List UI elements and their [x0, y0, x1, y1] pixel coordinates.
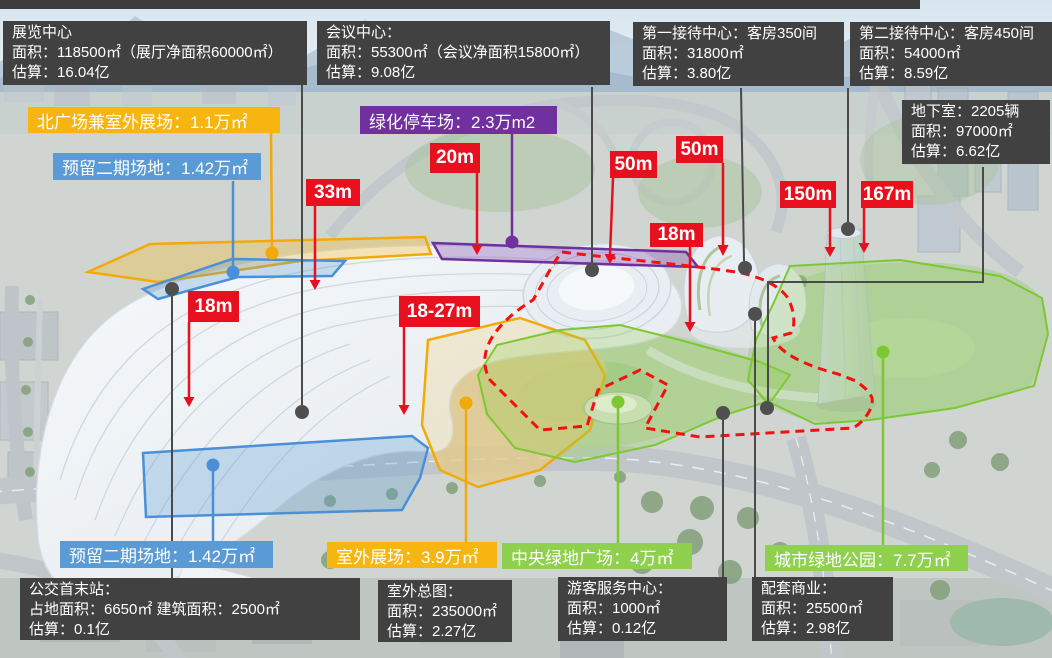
info-line: 展览中心: [12, 23, 298, 43]
leader-dot-reserved-south: [207, 459, 220, 472]
leader-dot-green-parking: [506, 236, 519, 249]
leader-dot-outdoor-exhibition: [460, 397, 473, 410]
dimension-tag-18-27m: 18-27m: [399, 296, 480, 327]
info-line: 估算：2.98亿: [761, 619, 884, 639]
leader-dot-second-reception: [841, 222, 855, 236]
dimension-tag-33m: 33m: [306, 179, 360, 206]
leader-dot-city-park: [877, 346, 890, 359]
info-line: 占地面积：6650㎡ 建筑面积：2500㎡: [29, 600, 351, 620]
info-line: 面积：1000㎡: [567, 599, 718, 619]
area-tag-north-plaza: 北广场兼室外展场：1.1万㎡: [28, 107, 280, 133]
info-line: 面积：54000㎡: [859, 44, 1043, 64]
leader-dot-exhibition: [295, 405, 309, 419]
leader-dot-bus-terminal: [165, 282, 179, 296]
leader-dot-north-plaza: [266, 247, 279, 260]
leader-dot-central-green: [612, 396, 625, 409]
dimension-tag-167m: 167m: [861, 181, 913, 208]
info-line: 会议中心：: [326, 23, 601, 43]
info-line: 面积：97000㎡: [911, 122, 1041, 142]
area-tag-reserved-phase2-south: 预留二期场地：1.42万㎡: [60, 541, 273, 568]
dimension-tag-18m-hotel: 18m: [650, 223, 703, 247]
info-line: 面积：25500㎡: [761, 599, 884, 619]
dimension-tag-20m: 20m: [430, 143, 480, 173]
leader-dot-visitor-center: [716, 406, 730, 420]
info-line: 估算：8.59亿: [859, 64, 1043, 84]
top-bar: [0, 0, 920, 9]
info-line: 估算：2.27亿: [387, 622, 503, 642]
area-tag-city-green-park: 城市绿地公园：7.7万㎡: [765, 545, 968, 571]
info-line: 地下室：2205辆: [911, 102, 1041, 122]
info-box-conference-center: 会议中心： 面积：55300㎡（会议净面积15800㎡） 估算：9.08亿: [317, 21, 610, 85]
info-box-exhibition-center: 展览中心 面积：118500㎡（展厅净面积60000㎡） 估算：16.04亿: [3, 21, 307, 85]
info-box-bus-terminal: 公交首末站： 占地面积：6650㎡ 建筑面积：2500㎡ 估算：0.1亿: [20, 578, 360, 640]
info-box-outdoor-master-plan: 室外总图： 面积：235000㎡ 估算：2.27亿: [378, 580, 512, 642]
info-line: 面积：55300㎡（会议净面积15800㎡）: [326, 43, 601, 63]
info-line: 估算：3.80亿: [642, 64, 835, 84]
dimension-tag-50m-west: 50m: [610, 151, 657, 178]
info-line: 估算：6.62亿: [911, 142, 1041, 162]
info-box-visitor-center: 游客服务中心： 面积：1000㎡ 估算：0.12亿: [558, 577, 727, 641]
info-line: 估算：9.08亿: [326, 63, 601, 83]
info-line: 游客服务中心：: [567, 579, 718, 599]
area-tag-outdoor-exhibition: 室外展场：3.9万㎡: [327, 542, 497, 568]
info-line: 室外总图：: [387, 582, 503, 602]
leader-north-plaza: [271, 133, 272, 247]
leader-dot-reserved-north: [227, 266, 240, 279]
dimension-tag-50m-east: 50m: [676, 136, 723, 163]
dimension-tag-150m: 150m: [780, 181, 836, 208]
info-box-commercial: 配套商业： 面积：25500㎡ 估算：2.98亿: [752, 577, 893, 641]
info-box-first-reception: 第一接待中心：客房350间 面积：31800㎡ 估算：3.80亿: [633, 22, 844, 86]
info-line: 估算：16.04亿: [12, 63, 298, 83]
area-tag-central-green-plaza: 中央绿地广场：4万㎡: [502, 543, 692, 569]
info-line: 第二接待中心：客房450间: [859, 24, 1043, 44]
leader-dot-conference: [585, 263, 599, 277]
info-line: 面积：118500㎡（展厅净面积60000㎡）: [12, 43, 298, 63]
info-line: 公交首末站：: [29, 580, 351, 600]
info-line: 第一接待中心：客房350间: [642, 24, 835, 44]
dimension-tag-18m-hall: 18m: [188, 291, 239, 322]
info-box-basement: 地下室：2205辆 面积：97000㎡ 估算：6.62亿: [902, 100, 1050, 164]
info-box-second-reception: 第二接待中心：客房450间 面积：54000㎡ 估算：8.59亿: [850, 22, 1052, 86]
leader-dot-basement: [760, 401, 774, 415]
slide-canvas: 展览中心 面积：118500㎡（展厅净面积60000㎡） 估算：16.04亿 会…: [0, 0, 1052, 658]
leader-dot-commercial: [748, 307, 762, 321]
info-line: 面积：31800㎡: [642, 44, 835, 64]
area-tag-green-parking: 绿化停车场：2.3万m2: [360, 106, 557, 134]
info-line: 配套商业：: [761, 579, 884, 599]
info-line: 估算：0.12亿: [567, 619, 718, 639]
leader-dot-first-reception: [738, 261, 752, 275]
info-line: 面积：235000㎡: [387, 602, 503, 622]
info-line: 估算：0.1亿: [29, 620, 351, 640]
area-tag-reserved-phase2-north: 预留二期场地：1.42万㎡: [53, 153, 261, 180]
